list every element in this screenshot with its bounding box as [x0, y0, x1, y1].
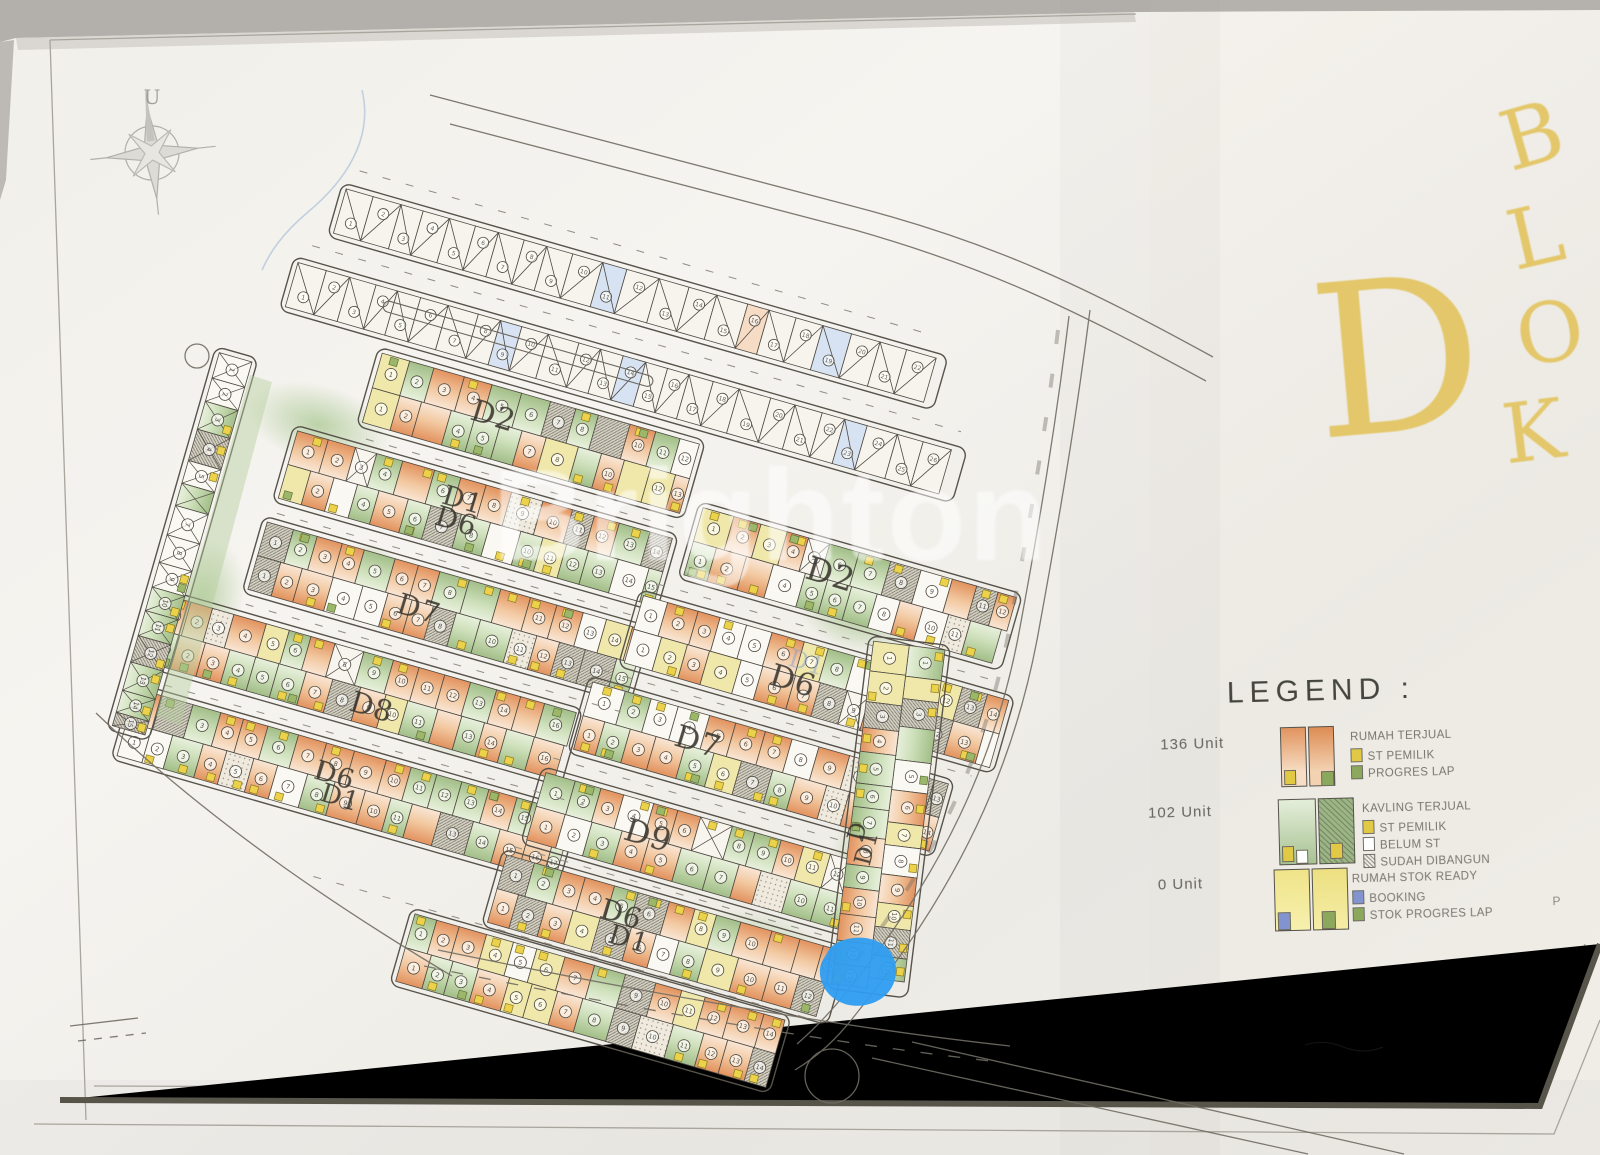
svg-text:10: 10: [889, 912, 898, 921]
site-plan-drawing: U123456789101112131415161718192021221234…: [0, 0, 1600, 1155]
pond: [820, 938, 896, 1006]
svg-text:11: 11: [852, 924, 861, 933]
compass-north-label: U: [144, 85, 161, 109]
blok-letter-o: O: [1510, 288, 1590, 380]
svg-text:11: 11: [886, 938, 895, 947]
svg-text:10: 10: [855, 898, 864, 907]
site-plan-photo: U123456789101112131415161718192021221234…: [0, 0, 1600, 1155]
blok-letter-k: K: [1498, 389, 1569, 478]
